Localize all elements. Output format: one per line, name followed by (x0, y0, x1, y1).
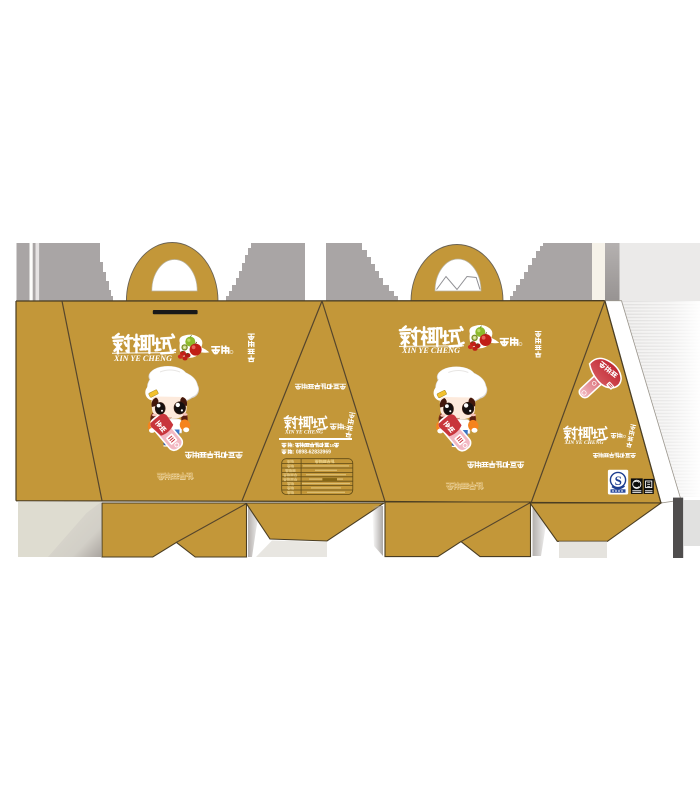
svg-text:XIN YE CHENG: XIN YE CHENG (563, 440, 603, 446)
svg-text:: 0898-62833969: : 0898-62833969 (293, 450, 331, 456)
svg-text:S: S (615, 473, 622, 488)
svg-text:XIN YE CHENG: XIN YE CHENG (401, 346, 460, 355)
svg-text:XIN YE CHENG: XIN YE CHENG (113, 354, 172, 363)
svg-text:XIN YE CHENG: XIN YE CHENG (284, 430, 323, 436)
